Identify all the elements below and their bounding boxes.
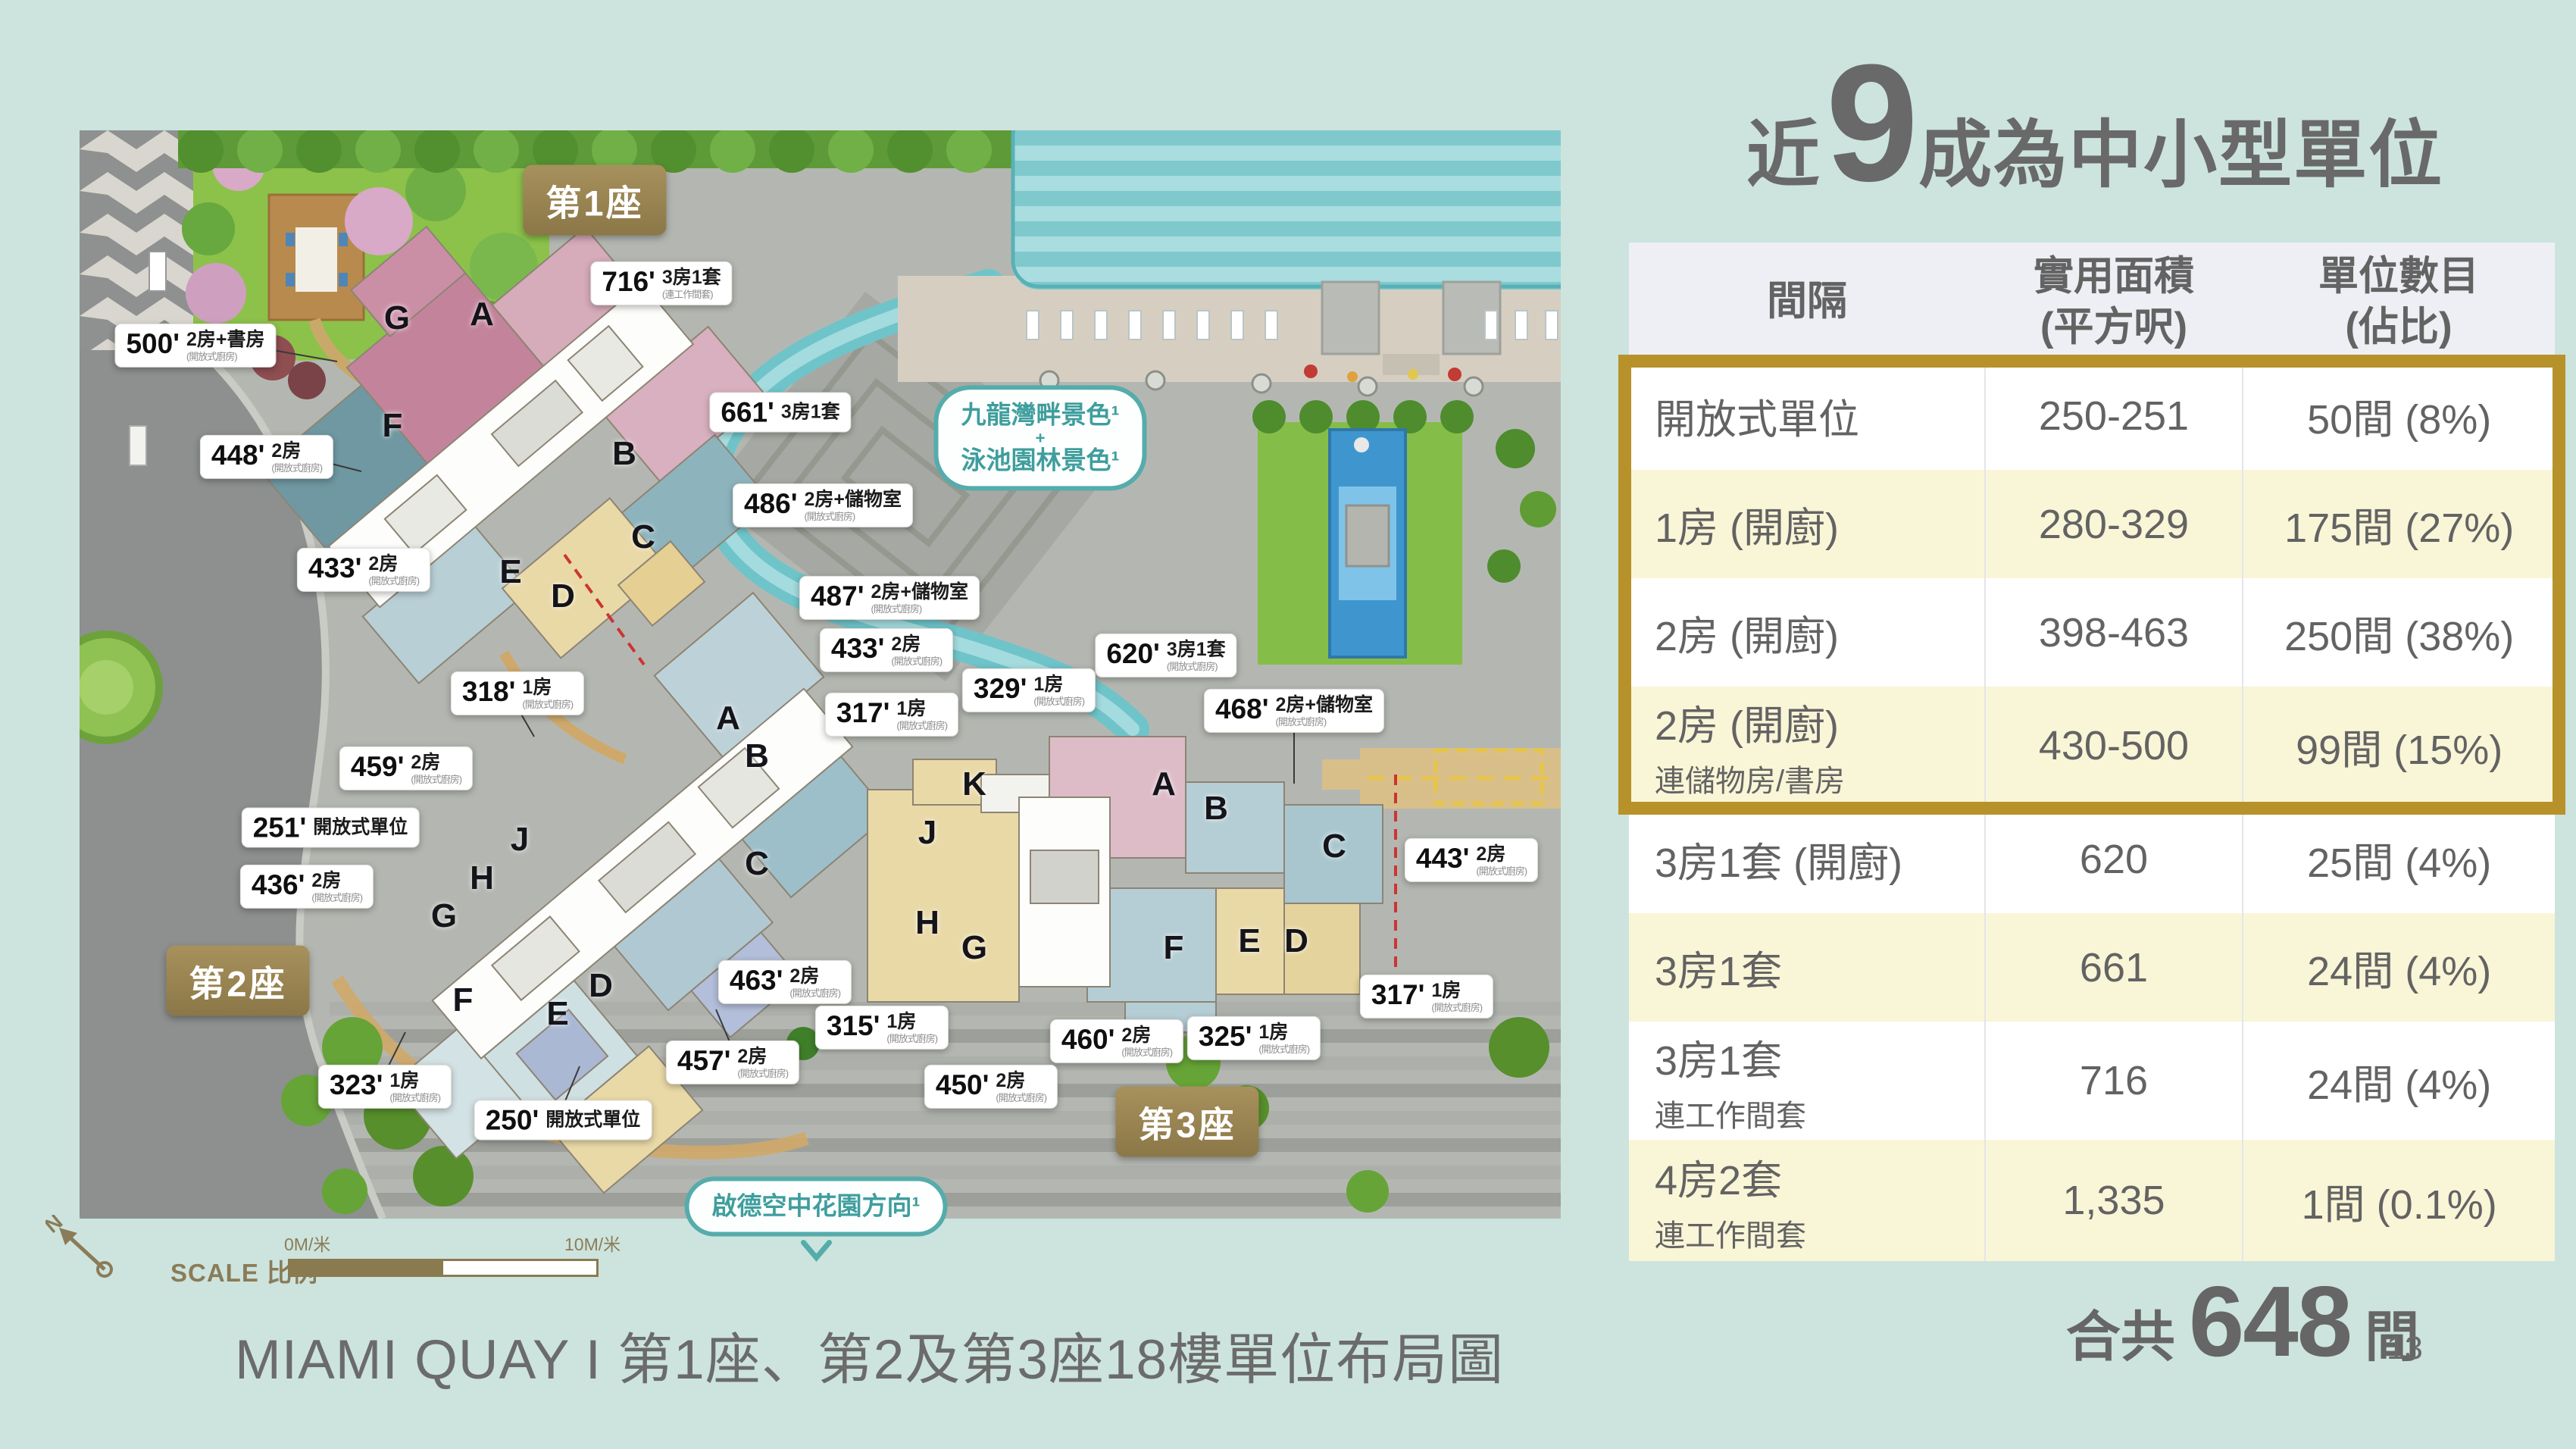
unit-letter: B [1204, 790, 1228, 828]
presentation-slide: 716'3房1套(連工作間套)500'2房+書房(開放式廚房)448'2房(開放… [0, 0, 2576, 1449]
unit-letter: A [1152, 765, 1176, 803]
bubble-line: 九龍灣畔景色¹ [961, 399, 1120, 431]
unit-letter: K [962, 765, 986, 803]
table-row: 2房 (開廚)398-463250間 (38%) [1629, 578, 2555, 687]
area-label-chip: 716'3房1套(連工作間套) [590, 261, 732, 305]
scale-bar [288, 1259, 599, 1277]
unit-letter: G [384, 299, 410, 337]
unit-letter: F [383, 407, 403, 445]
row-area-cell: 620 [1984, 805, 2243, 913]
table-body: 開放式單位250-25150間 (8%)1房 (開廚)280-329175間 (… [1629, 361, 2555, 1261]
area-label-chip: 457'2房(開放式廚房) [666, 1041, 799, 1084]
unit-letter: C [745, 845, 769, 883]
area-label-chip: 500'2房+書房(開放式廚房) [114, 324, 276, 368]
area-label-chip: 486'2房+儲物室(開放式廚房) [733, 484, 913, 527]
total-value: 648 [2189, 1264, 2351, 1379]
row-count-cell: 24間 (4%) [2242, 1022, 2555, 1140]
row-area-cell: 280-329 [1984, 470, 2243, 578]
scale-and-compass: N SCALE 比例 0M/米 10M/米 [45, 1209, 652, 1292]
site-plan-illustration [80, 130, 1561, 1219]
area-label-chip: 436'2房(開放式廚房) [240, 865, 374, 909]
area-label-chip: 318'1房(開放式廚房) [451, 671, 584, 715]
tower-badge: 第3座 [1115, 1087, 1258, 1157]
title-prefix: 近 [1746, 95, 1821, 202]
area-label-chip: 323'1房(開放式廚房) [318, 1065, 452, 1109]
unit-mix-table: 間隔 實用面積(平方呎) 單位數目(佔比) 開放式單位250-25150間 (8… [1629, 243, 2555, 1261]
unit-letter: H [915, 904, 939, 942]
row-layout-cell: 3房1套連工作間套 [1629, 1022, 1984, 1140]
unit-letter: D [1284, 922, 1308, 960]
page-number: 13 [2387, 1330, 2423, 1367]
tower-badge: 第2座 [166, 946, 309, 1016]
tower-badge: 第1座 [523, 165, 666, 236]
row-count-cell: 25間 (4%) [2242, 805, 2555, 913]
table-row: 3房1套66124間 (4%) [1629, 913, 2555, 1022]
area-label-chip: 325'1房(開放式廚房) [1187, 1016, 1321, 1060]
unit-letter: E [499, 553, 521, 591]
site-plan-map: 716'3房1套(連工作間套)500'2房+書房(開放式廚房)448'2房(開放… [80, 130, 1561, 1219]
row-layout-cell: 1房 (開廚) [1629, 470, 1984, 578]
row-count-cell: 24間 (4%) [2242, 913, 2555, 1022]
row-count-cell: 250間 (38%) [2242, 578, 2555, 687]
area-label-chip: 433'2房(開放式廚房) [820, 628, 953, 672]
area-label-chip: 317'1房(開放式廚房) [825, 693, 958, 737]
table-row: 開放式單位250-25150間 (8%) [1629, 361, 2555, 470]
table-row: 3房1套 (開廚)62025間 (4%) [1629, 805, 2555, 913]
row-layout-cell: 4房2套連工作間套 [1629, 1140, 1984, 1261]
area-label-chip: 487'2房+儲物室(開放式廚房) [799, 576, 980, 620]
unit-letter: F [453, 981, 474, 1019]
scale-ten-label: 10M/米 [564, 1230, 621, 1256]
unit-letter: C [631, 518, 655, 556]
unit-letter: E [1238, 922, 1260, 960]
bubble-line: 泳池園林景色¹ [961, 445, 1120, 477]
table-row: 1房 (開廚)280-329175間 (27%) [1629, 470, 2555, 578]
unit-letter: D [551, 577, 575, 615]
unit-letter: A [716, 699, 740, 737]
scale-zero-label: 0M/米 [284, 1230, 330, 1256]
area-label-chip: 463'2房(開放式廚房) [718, 960, 852, 1004]
unit-letter: B [612, 435, 636, 473]
bubble-line: 啟德空中花園方向¹ [712, 1191, 921, 1223]
map-caption: MIAMI QUAY I 第1座、第2及第3座18樓單位布局圖 [235, 1315, 1504, 1395]
area-label-chip: 443'2房(開放式廚房) [1405, 838, 1538, 882]
area-label-chip: 448'2房(開放式廚房) [200, 435, 333, 479]
area-label-chip: 433'2房(開放式廚房) [297, 548, 430, 592]
view-bubble: 九龍灣畔景色¹+泳池園林景色¹ [934, 385, 1147, 490]
area-label-chip: 460'2房(開放式廚房) [1050, 1019, 1183, 1063]
table-row: 4房2套連工作間套1,3351間 (0.1%) [1629, 1140, 2555, 1261]
row-layout-cell: 開放式單位 [1629, 361, 1984, 470]
area-label-chip: 317'1房(開放式廚房) [1360, 975, 1493, 1019]
view-bubble: 啟德空中花園方向¹ [685, 1177, 948, 1237]
unit-letter: A [470, 296, 494, 333]
bubble-line: + [961, 431, 1120, 445]
row-area-cell: 430-500 [1984, 687, 2243, 805]
total-prefix: 合共 [2066, 1292, 2175, 1372]
header-layout: 間隔 [1629, 277, 1985, 327]
unit-letter: F [1164, 929, 1184, 967]
unit-letter: G [431, 897, 457, 935]
area-label-chip: 329'1房(開放式廚房) [962, 668, 1096, 712]
header-count: 單位數目(佔比) [2243, 252, 2555, 352]
unit-letter: B [745, 737, 769, 775]
unit-letter: G [961, 929, 987, 967]
direction-arrow-icon [799, 1238, 833, 1267]
unit-letter: J [918, 814, 936, 852]
area-label-chip: 251'開放式單位 [242, 808, 420, 848]
row-area-cell: 1,335 [1984, 1140, 2243, 1261]
area-label-chip: 620'3房1套(開放式廚房) [1095, 634, 1236, 678]
table-header-row: 間隔 實用面積(平方呎) 單位數目(佔比) [1629, 243, 2555, 361]
row-area-cell: 250-251 [1984, 361, 2243, 470]
total-units: 合共 648 間 [2046, 1264, 2440, 1379]
unit-letter: C [1322, 828, 1346, 865]
row-count-cell: 175間 (27%) [2242, 470, 2555, 578]
row-area-cell: 661 [1984, 913, 2243, 1022]
unit-letter: J [511, 821, 529, 859]
row-area-cell: 398-463 [1984, 578, 2243, 687]
area-label-chip: 468'2房+儲物室(開放式廚房) [1204, 689, 1384, 733]
row-count-cell: 50間 (8%) [2242, 361, 2555, 470]
row-layout-cell: 2房 (開廚)連儲物房/書房 [1629, 687, 1984, 805]
row-area-cell: 716 [1984, 1022, 2243, 1140]
row-layout-cell: 3房1套 [1629, 913, 1984, 1022]
scale-bar-fill [290, 1261, 443, 1275]
unit-letter: D [589, 967, 613, 1005]
row-count-cell: 1間 (0.1%) [2242, 1140, 2555, 1261]
unit-letter: E [546, 995, 568, 1033]
area-label-chip: 459'2房(開放式廚房) [339, 746, 473, 790]
table-row: 3房1套連工作間套71624間 (4%) [1629, 1022, 2555, 1140]
unit-letter: H [470, 859, 494, 897]
title-suffix: 成為中小型單位 [1918, 95, 2443, 202]
north-arrow-icon: N [45, 1215, 129, 1287]
area-label-chip: 250'開放式單位 [474, 1100, 652, 1141]
area-label-chip: 315'1房(開放式廚房) [815, 1006, 949, 1050]
area-label-chip: 661'3房1套 [709, 393, 851, 433]
row-layout-cell: 3房1套 (開廚) [1629, 805, 1984, 913]
table-row: 2房 (開廚)連儲物房/書房430-50099間 (15%) [1629, 687, 2555, 805]
row-count-cell: 99間 (15%) [2242, 687, 2555, 805]
title-big-number: 9 [1826, 39, 1914, 206]
header-area: 實用面積(平方呎) [1985, 252, 2243, 352]
slide-title: 近 9 成為中小型單位 [1629, 39, 2561, 206]
row-layout-cell: 2房 (開廚) [1629, 578, 1984, 687]
area-label-chip: 450'2房(開放式廚房) [924, 1065, 1058, 1109]
